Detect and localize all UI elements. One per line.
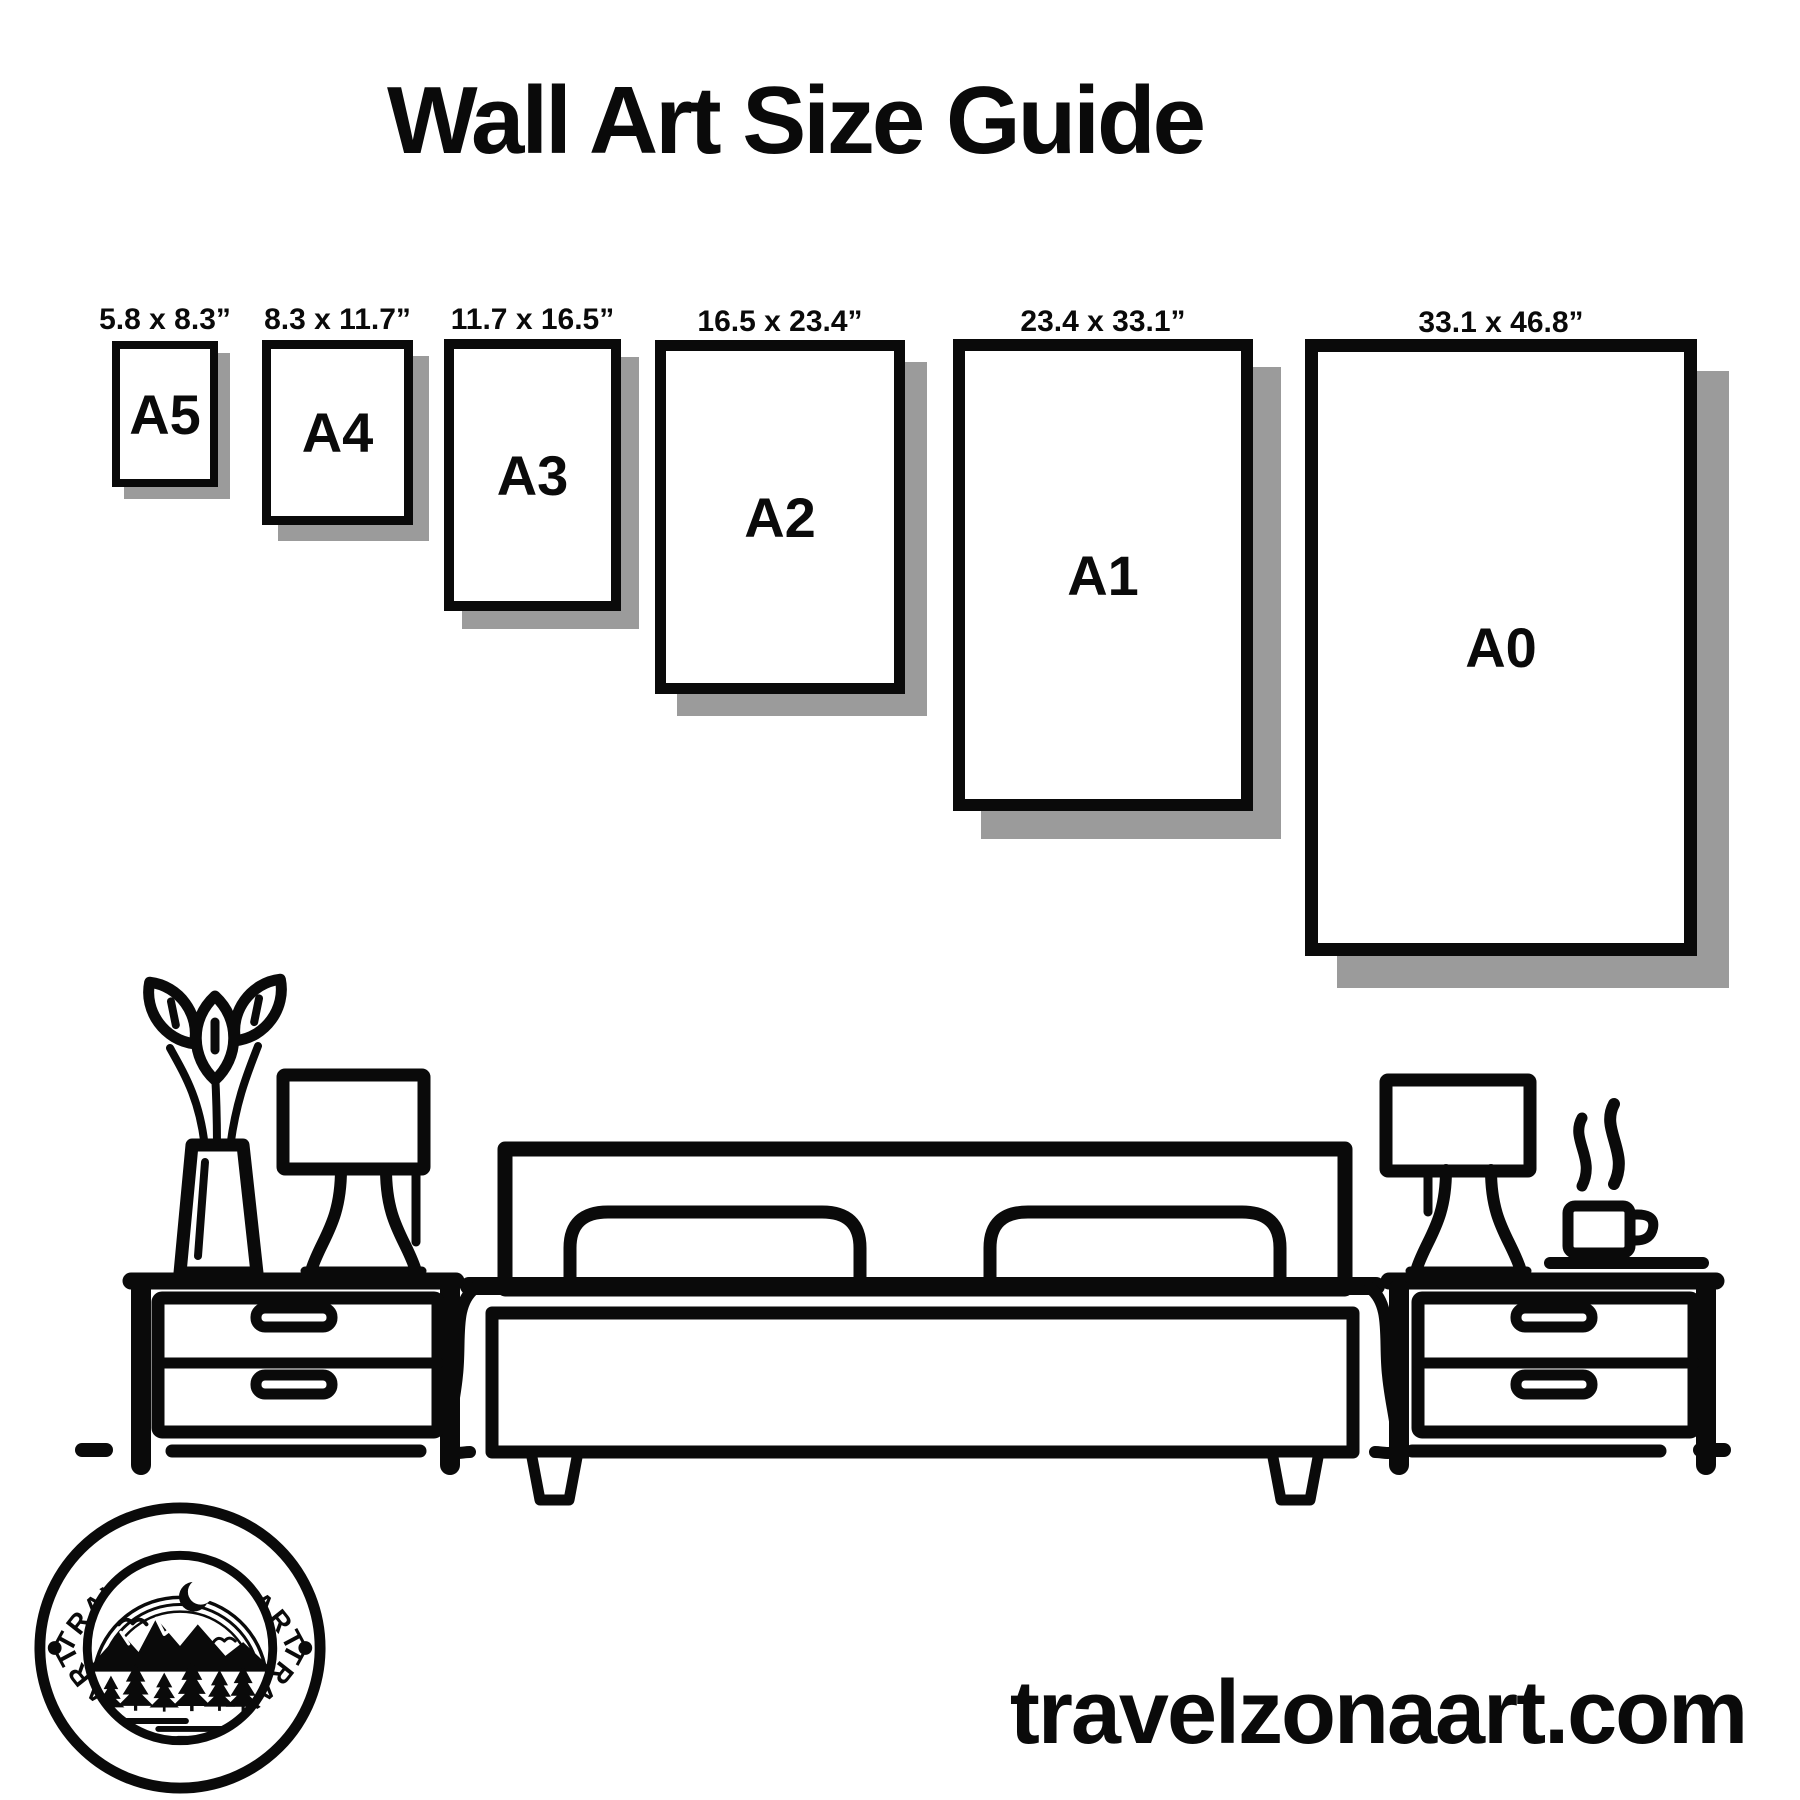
- bedroom-scene: [0, 850, 1800, 1550]
- lamp-shade: [283, 1075, 424, 1169]
- frame-a1-dimensions: 23.4 x 33.1”: [1020, 305, 1185, 339]
- frame-a4-dimensions: 8.3 x 11.7”: [264, 303, 411, 337]
- bed-icon: [449, 1149, 1397, 1500]
- drawer-handle: [256, 1375, 332, 1394]
- nightstand-icon: [131, 1281, 456, 1465]
- table-lamp-icon: [283, 1075, 424, 1271]
- page-title: Wall Art Size Guide: [0, 66, 1590, 176]
- brand-logo-badge: TRAVELZONAART TRAVELZONAART: [32, 1500, 328, 1796]
- frame-a1: 23.4 x 33.1” A1: [953, 339, 1253, 811]
- cup-body: [1568, 1206, 1630, 1253]
- frame-a0-label: A0: [1465, 615, 1537, 680]
- frame-a4: 8.3 x 11.7” A4: [262, 340, 413, 525]
- frame-a5: 5.8 x 8.3” A5: [112, 341, 218, 487]
- steam-icon: [1579, 1118, 1587, 1186]
- pillow: [990, 1212, 1280, 1287]
- lamp-stem: [312, 1169, 341, 1268]
- frame-a5-label: A5: [129, 382, 201, 447]
- frame-a5-dimensions: 5.8 x 8.3”: [99, 303, 231, 337]
- plant-vase-icon: [136, 970, 293, 1273]
- frame-a2-label: A2: [744, 485, 816, 550]
- frame-a2-dimensions: 16.5 x 23.4”: [697, 305, 862, 339]
- table-lamp-icon: [1386, 1080, 1530, 1271]
- lamp-stem: [386, 1169, 415, 1268]
- leaf: [196, 996, 234, 1080]
- drawer-handle: [1516, 1308, 1592, 1327]
- vase: [180, 1145, 257, 1273]
- frame-a3-dimensions: 11.7 x 16.5”: [451, 303, 614, 337]
- frame-a2: 16.5 x 23.4” A2: [655, 340, 905, 694]
- bed-base: [492, 1313, 1353, 1452]
- drawer-handle: [1516, 1375, 1592, 1394]
- website-url: travelzonaart.com: [1000, 1662, 1756, 1765]
- frame-a3-label: A3: [497, 443, 569, 508]
- nightstand-icon: [1389, 1281, 1716, 1465]
- frame-a0-dimensions: 33.1 x 46.8”: [1418, 306, 1583, 340]
- bed-leg: [1272, 1452, 1319, 1500]
- lamp-shade: [1386, 1080, 1530, 1171]
- frame-a1-label: A1: [1067, 543, 1139, 608]
- bed-leg: [531, 1452, 578, 1500]
- frame-a3: 11.7 x 16.5” A3: [444, 339, 621, 611]
- drawer-handle: [256, 1308, 332, 1327]
- frame-a4-label: A4: [302, 400, 374, 465]
- lamp-stem: [1491, 1170, 1520, 1268]
- steam-icon: [1610, 1104, 1619, 1184]
- coffee-cup-icon: [1550, 1104, 1703, 1263]
- pillow: [570, 1212, 860, 1287]
